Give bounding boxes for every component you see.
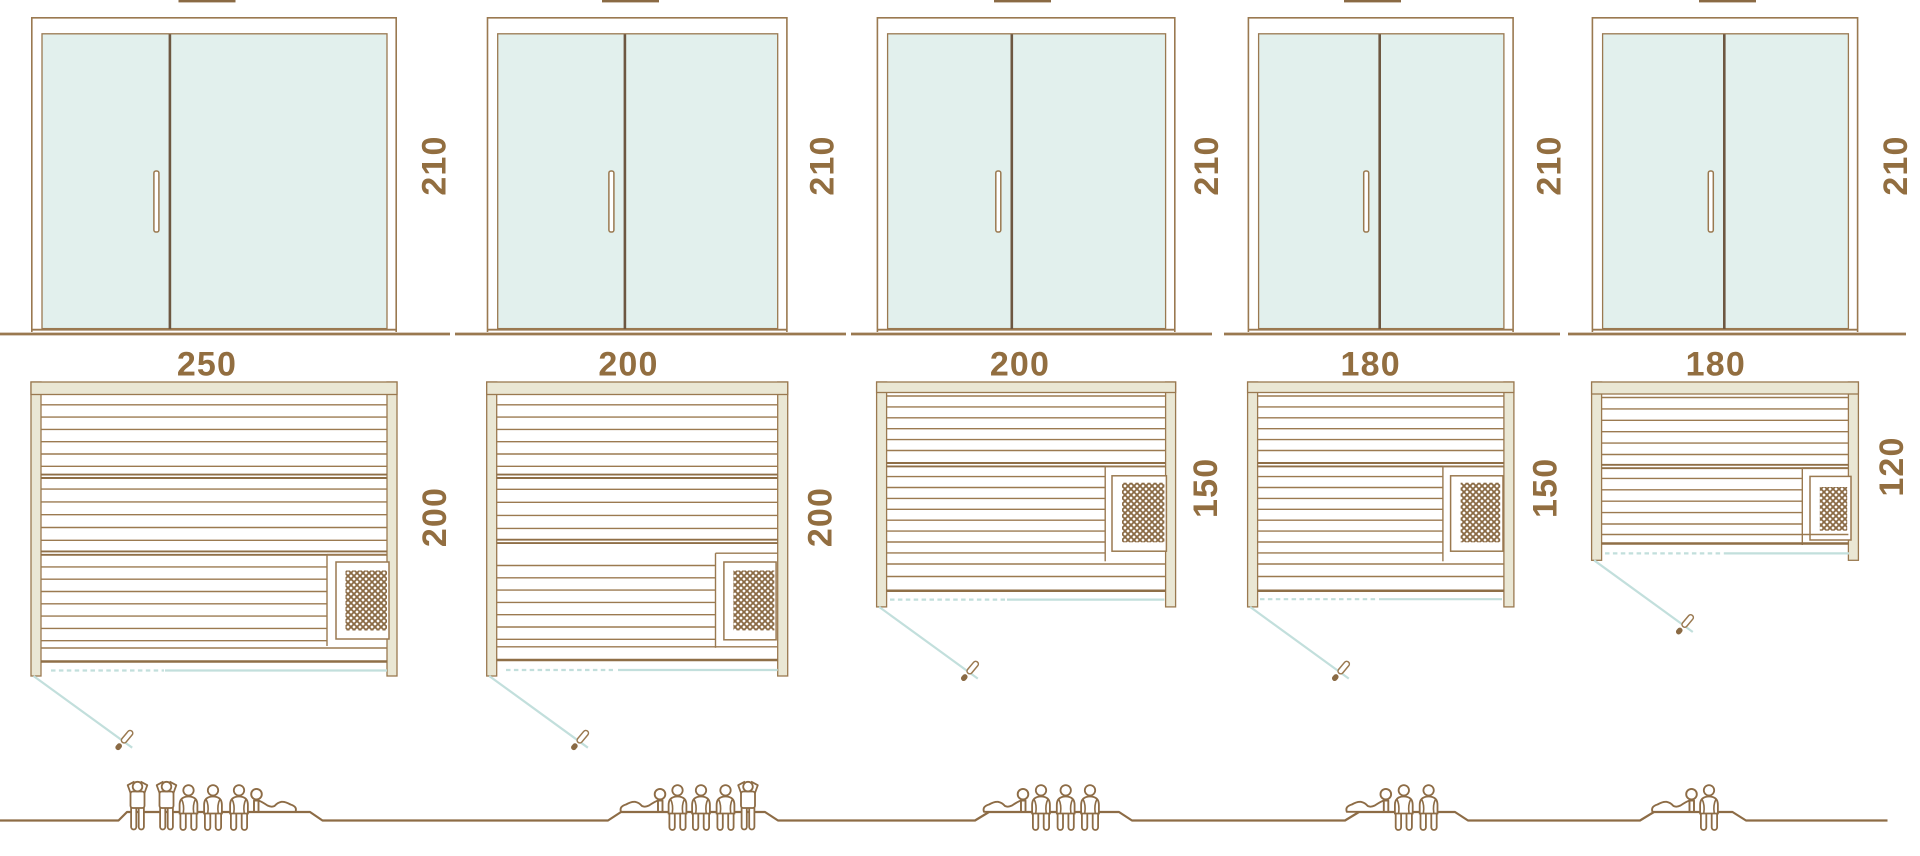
svg-text:200: 200 [598, 346, 658, 384]
svg-text:210: 210 [416, 135, 454, 195]
svg-text:120: 120 [1873, 436, 1911, 496]
svg-text:200: 200 [801, 487, 839, 547]
svg-text:180: 180 [1341, 346, 1401, 384]
svg-text:210: 210 [1531, 135, 1569, 195]
svg-text:210: 210 [804, 135, 842, 195]
svg-text:250: 250 [177, 346, 237, 384]
svg-text:210: 210 [1877, 135, 1915, 195]
svg-text:210: 210 [1188, 135, 1226, 195]
svg-text:200: 200 [416, 487, 454, 547]
svg-text:200: 200 [990, 346, 1050, 384]
svg-text:150: 150 [1527, 458, 1565, 518]
svg-text:180: 180 [1686, 346, 1746, 384]
svg-text:150: 150 [1187, 458, 1225, 518]
